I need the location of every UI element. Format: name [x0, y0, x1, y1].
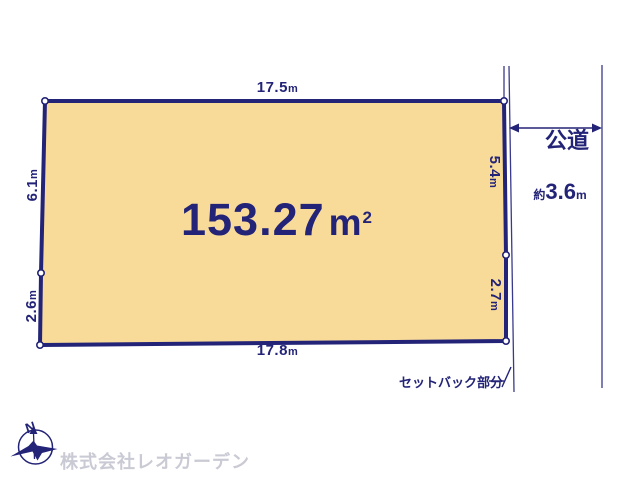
- vertex-marker: [503, 338, 509, 344]
- dim-bottom-value: 17.8: [257, 342, 288, 359]
- road-width-label: 約3.6m: [518, 179, 602, 205]
- dim-right-upper-value: 5.4: [486, 156, 503, 178]
- dim-left-lower: 2.6m: [24, 276, 40, 336]
- setback-label: セットバック部分: [399, 372, 503, 391]
- dim-right-lower-unit: m: [488, 301, 500, 311]
- dim-left-lower-unit: m: [27, 290, 39, 300]
- area-label: 153.27m2: [100, 196, 454, 247]
- dim-right-lower-value: 2.7: [487, 279, 504, 301]
- area-value: 153.27: [181, 194, 325, 245]
- land-plot-diagram: N 153.27m2 17.5m 17.8m 6.1m 2.6m 5.4m 2.…: [0, 0, 640, 480]
- area-superscript: 2: [363, 208, 373, 227]
- dim-left-lower-value: 2.6: [23, 300, 40, 322]
- vertex-marker: [42, 98, 48, 104]
- company-watermark: 株式会社レオガーデン: [60, 448, 250, 474]
- dim-left-upper-value: 6.1: [24, 179, 41, 201]
- dim-bottom-unit: m: [288, 346, 298, 358]
- road-width-unit: m: [576, 188, 587, 202]
- dim-right-upper: 5.4m: [486, 142, 502, 202]
- dim-left-upper-unit: m: [28, 169, 40, 179]
- dim-top-value: 17.5: [257, 79, 288, 96]
- vertex-marker: [37, 342, 43, 348]
- road-width-prefix: 約: [533, 188, 545, 202]
- setback-line: [509, 66, 514, 392]
- road-label: 公道: [545, 128, 571, 154]
- dim-right-lower: 2.7m: [487, 265, 503, 325]
- dim-top: 17.5m: [240, 79, 315, 96]
- dim-top-unit: m: [288, 83, 298, 95]
- dim-right-upper-unit: m: [487, 178, 499, 188]
- area-unit: m: [329, 202, 363, 243]
- vertex-marker: [503, 252, 509, 258]
- dim-left-upper: 6.1m: [25, 155, 41, 215]
- compass-icon: N: [11, 418, 58, 464]
- dim-bottom: 17.8m: [240, 342, 315, 359]
- road-width-value: 3.6: [545, 179, 576, 204]
- vertex-marker: [501, 98, 507, 104]
